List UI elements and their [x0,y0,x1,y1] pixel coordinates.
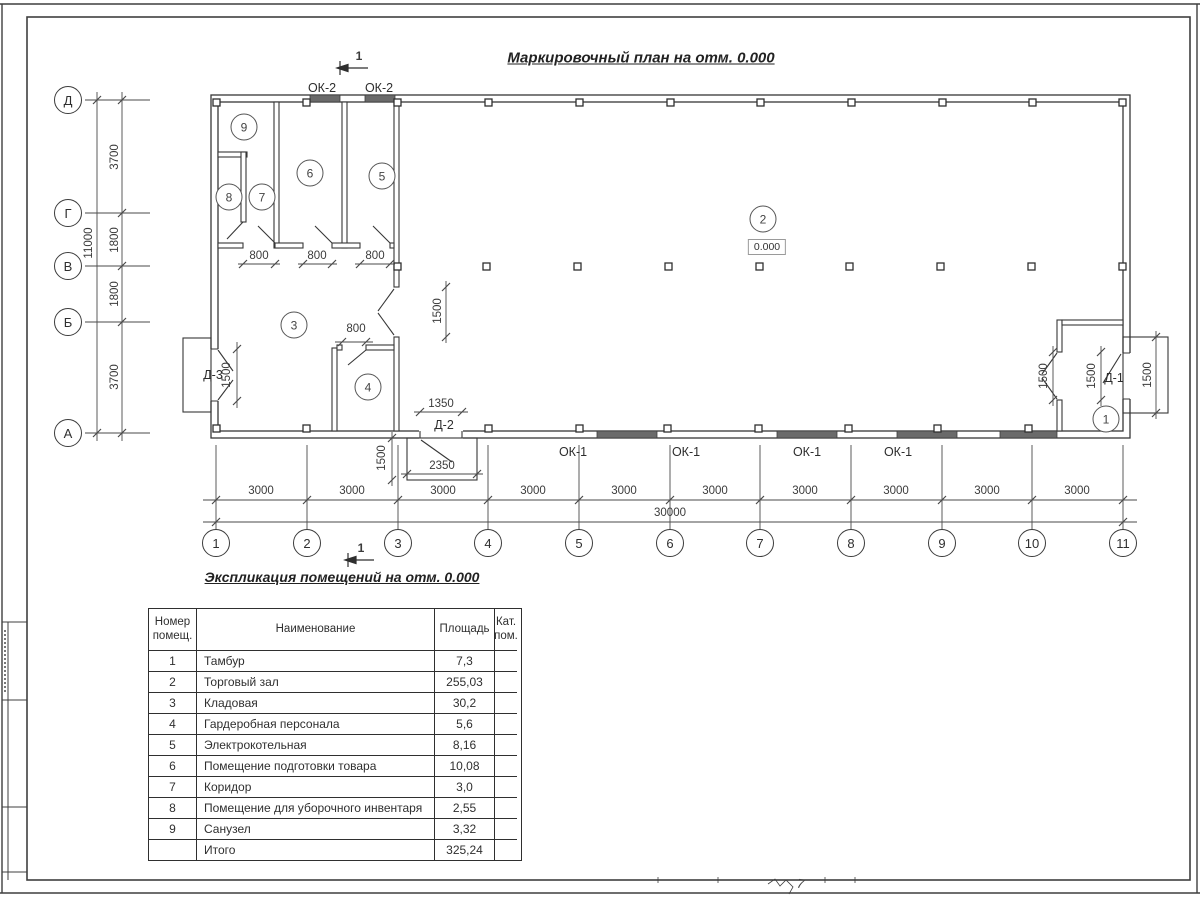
schedule-header-area: Площадь [435,609,495,651]
dim-3000-1: 3000 [248,485,274,497]
window-mark-ok2-2: ОК-2 [365,81,393,95]
dim-1500-2: 1500 [432,298,444,324]
schedule-cell-cat [495,819,517,840]
axis-letter-bubble-4: А [54,419,82,447]
dim-vseg-3: 3700 [109,364,121,390]
schedule-body: 1Тамбур7,32Торговый зал255,033Кладовая30… [149,651,521,860]
dim-1500-5: 1500 [1086,363,1098,389]
dim-3000-10: 3000 [1064,485,1090,497]
columns [213,99,1126,432]
schedule-cell-cat [495,777,517,798]
section-mark-top: 1 [356,49,363,63]
schedule-row-4: 4Гардеробная персонала5,6 [149,714,521,735]
dim-1500-4: 1500 [1038,363,1050,389]
schedule-cell-num: 4 [149,714,197,735]
axis-number-bubble-7: 7 [746,529,774,557]
dim-800-4: 800 [346,323,365,335]
schedule-cell-cat [495,693,517,714]
dim-3000-8: 3000 [883,485,909,497]
schedule-row-7: 7Коридор3,0 [149,777,521,798]
dim-11000: 11000 [83,227,95,258]
schedule-row-9: 9Санузел3,32 [149,819,521,840]
axis-number-bubble-5: 5 [565,529,593,557]
schedule-cell-num: 3 [149,693,197,714]
room-number-bubble-8: 8 [216,184,243,211]
axis-letter-bubble-3: Б [54,308,82,336]
schedule-cell-num: 8 [149,798,197,819]
schedule-cell-name: Электрокотельная [197,735,435,756]
schedule-header-name: Наименование [197,609,435,651]
schedule-cell-cat [495,735,517,756]
schedule-cell-name: Гардеробная персонала [197,714,435,735]
dim-3000-6: 3000 [702,485,728,497]
window-ok2-1 [310,95,340,102]
axis-letter-bubble-0: Д [54,86,82,114]
schedule-cell-num: 5 [149,735,197,756]
door-mark-d1: Д-1 [1104,371,1124,385]
dim-vseg-1: 1800 [109,227,121,253]
room-number-bubble-9: 9 [231,114,258,141]
drawing-sheet: Маркировочный план на отм. 0.000 Эксплик… [0,0,1200,900]
room-schedule-table: Номер помещ. Наименование Площадь Кат. п… [148,608,522,861]
dim-3000-9: 3000 [974,485,1000,497]
schedule-row-2: 2Торговый зал255,03 [149,672,521,693]
dim-1500-6: 1500 [1142,362,1154,388]
axis-letter-bubble-2: В [54,252,82,280]
schedule-cell-cat [495,672,517,693]
windows [310,95,1057,438]
schedule-cell-area: 3,0 [435,777,495,798]
axis-number-bubble-6: 6 [656,529,684,557]
schedule-cell-cat [495,798,517,819]
schedule-header-num: Номер помещ. [149,609,197,651]
window-mark-ok2-1: ОК-2 [308,81,336,95]
dim-vseg-2: 1800 [109,281,121,307]
schedule-cell-cat [495,756,517,777]
window-mark-ok1-2: ОК-1 [672,445,700,459]
window-mark-ok1-3: ОК-1 [793,445,821,459]
dim-800-1: 800 [249,250,268,262]
schedule-cell-area: 5,6 [435,714,495,735]
dim-3000-4: 3000 [520,485,546,497]
schedule-cell-cat [495,840,517,860]
dim-30000: 30000 [654,507,686,519]
dim-vseg-0: 3700 [109,144,121,170]
door-mark-d3: Д-3 [203,368,223,382]
axis-number-bubble-3: 3 [384,529,412,557]
schedule-cell-area: 7,3 [435,651,495,672]
room-number-bubble-3: 3 [281,312,308,339]
schedule-cell-num [149,840,197,860]
window-ok1-2 [777,431,837,438]
schedule-cell-area: 2,55 [435,798,495,819]
footer-scribble [768,879,793,894]
axis-number-bubble-4: 4 [474,529,502,557]
window-mark-ok1-4: ОК-1 [884,445,912,459]
dim-3000-7: 3000 [792,485,818,497]
window-ok1-1 [597,431,657,438]
schedule-cell-name: Торговый зал [197,672,435,693]
dim-3000-3: 3000 [430,485,456,497]
dimension-ticks [93,96,1160,526]
plan-title: Маркировочный план на отм. 0.000 [507,50,774,67]
schedule-cell-area: 3,32 [435,819,495,840]
schedule-cell-cat [495,651,517,672]
schedule-cell-name: Помещение подготовки товара [197,756,435,777]
schedule-row-3: 3Кладовая30,2 [149,693,521,714]
dim-1500-3: 1500 [376,445,388,471]
axis-letter-bubble-1: Г [54,199,82,227]
window-mark-ok1-1: ОК-1 [559,445,587,459]
schedule-cell-name: Кладовая [197,693,435,714]
room-number-bubble-2: 2 [750,206,777,233]
schedule-row-6: 6Помещение подготовки товара10,08 [149,756,521,777]
schedule-cell-area: 255,03 [435,672,495,693]
schedule-cell-name: Коридор [197,777,435,798]
schedule-cell-area: 10,08 [435,756,495,777]
room-number-bubble-4: 4 [355,374,382,401]
schedule-header-cat: Кат. пом. [495,609,517,651]
axis-number-bubble-10: 10 [1018,529,1046,557]
elevation-value-box: 0.000 [748,239,786,255]
schedule-cell-area: 8,16 [435,735,495,756]
schedule-row-5: 5Электрокотельная8,16 [149,735,521,756]
window-ok1-3 [897,431,957,438]
schedule-cell-num: 7 [149,777,197,798]
schedule-cell-num: 9 [149,819,197,840]
room-number-bubble-7: 7 [249,184,276,211]
dim-800-3: 800 [365,250,384,262]
dim-2350: 2350 [429,460,455,472]
schedule-cell-name: Тамбур [197,651,435,672]
room-number-bubble-6: 6 [297,160,324,187]
schedule-header-row: Номер помещ. Наименование Площадь Кат. п… [149,609,521,651]
dim-800-2: 800 [307,250,326,262]
schedule-cell-name: Итого [197,840,435,860]
axis-number-bubble-1: 1 [202,529,230,557]
dim-3000-5: 3000 [611,485,637,497]
section-mark-bottom: 1 [358,541,365,555]
schedule-cell-area: 325,24 [435,840,495,860]
dim-1350: 1350 [428,398,454,410]
axis-number-bubble-9: 9 [928,529,956,557]
axis-number-bubble-8: 8 [837,529,865,557]
room-number-bubble-5: 5 [369,163,396,190]
window-ok2-2 [365,95,395,102]
schedule-cell-num: 2 [149,672,197,693]
door-mark-d2: Д-2 [434,418,454,432]
schedule-cell-name: Помещение для уборочного инвентаря [197,798,435,819]
schedule-cell-num: 1 [149,651,197,672]
schedule-cell-area: 30,2 [435,693,495,714]
dim-3000-2: 3000 [339,485,365,497]
axis-number-bubble-11: 11 [1109,529,1137,557]
schedule-row-1: 1Тамбур7,3 [149,651,521,672]
axis-number-bubble-2: 2 [293,529,321,557]
schedule-row-10: Итого325,24 [149,840,521,860]
room-number-bubble-1: 1 [1093,406,1120,433]
schedule-cell-num: 6 [149,756,197,777]
schedule-cell-cat [495,714,517,735]
schedule-row-8: 8Помещение для уборочного инвентаря2,55 [149,798,521,819]
schedule-cell-name: Санузел [197,819,435,840]
schedule-title: Экспликация помещений на отм. 0.000 [205,569,480,585]
